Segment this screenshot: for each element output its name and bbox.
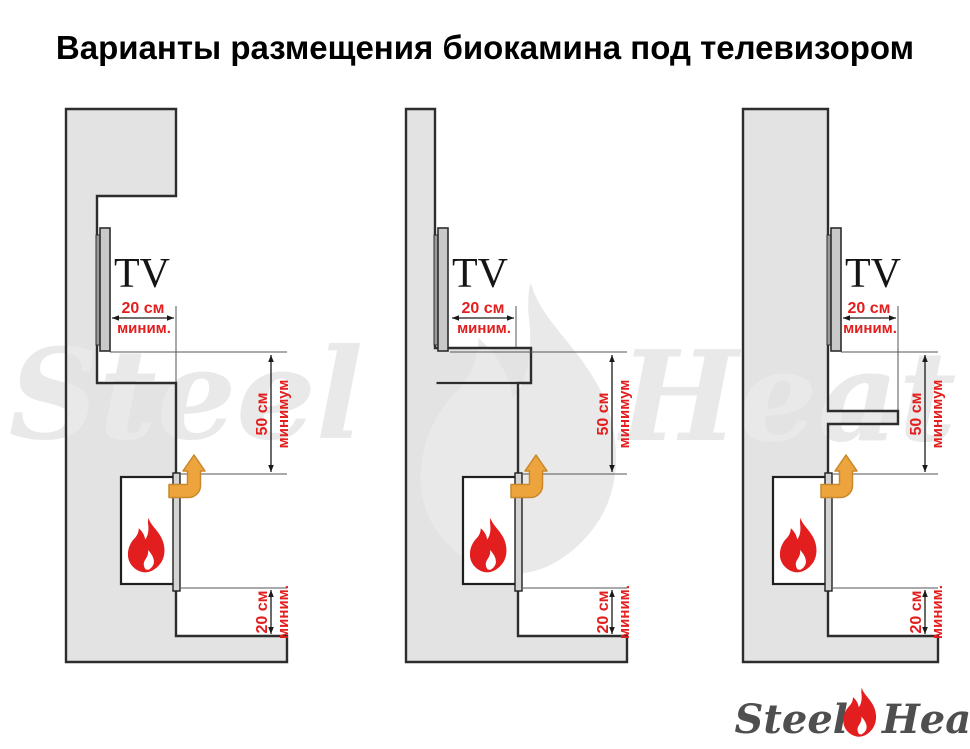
dim-tv-clearance-qualifier: миним. — [843, 320, 897, 337]
logo-flame-icon — [843, 688, 876, 737]
brand-logo: Steel Heat — [735, 688, 970, 743]
dim-gap-value: 50 см — [254, 393, 271, 436]
tv-label: TV — [452, 251, 508, 297]
page-title: Варианты размещения биокамина под телеви… — [56, 29, 914, 66]
dim-tv-clearance-value: 20 см — [848, 300, 891, 317]
tv-panel — [831, 228, 841, 351]
watermark-word-left: Steel — [9, 322, 364, 468]
dim-bottom-qualifier: миним. — [929, 585, 946, 639]
dim-bottom-value: 20 см — [908, 591, 925, 634]
dim-tv-clearance-value: 20 см — [462, 300, 505, 317]
logo-word-right: Heat — [881, 696, 970, 743]
tv-panel — [438, 228, 448, 351]
dim-bottom-value: 20 см — [595, 591, 612, 634]
placement-diagram: Steel Heat TV 20 см ми — [0, 0, 970, 749]
dim-tv-clearance-qualifier: миним. — [457, 320, 511, 337]
dim-gap-qualifier: минимум — [616, 380, 633, 449]
dim-gap-qualifier: минимум — [929, 380, 946, 449]
dim-bottom-value: 20 см — [254, 591, 271, 634]
dim-bottom-qualifier: миним. — [275, 585, 292, 639]
tv-panel — [100, 228, 110, 351]
dim-tv-clearance-value: 20 см — [122, 300, 165, 317]
logo-word-left: Steel — [735, 696, 848, 743]
watermark-word-right: Heat — [617, 324, 956, 470]
dim-tv-clearance-qualifier: миним. — [117, 320, 171, 337]
tv-label: TV — [114, 251, 170, 297]
dim-gap-value: 50 см — [595, 393, 612, 436]
infographic-canvas: Steel Heat TV 20 см ми — [0, 0, 970, 749]
dim-bottom-qualifier: миним. — [616, 585, 633, 639]
tv-label: TV — [845, 251, 901, 297]
dim-gap-qualifier: минимум — [275, 380, 292, 449]
dim-gap-value: 50 см — [908, 393, 925, 436]
